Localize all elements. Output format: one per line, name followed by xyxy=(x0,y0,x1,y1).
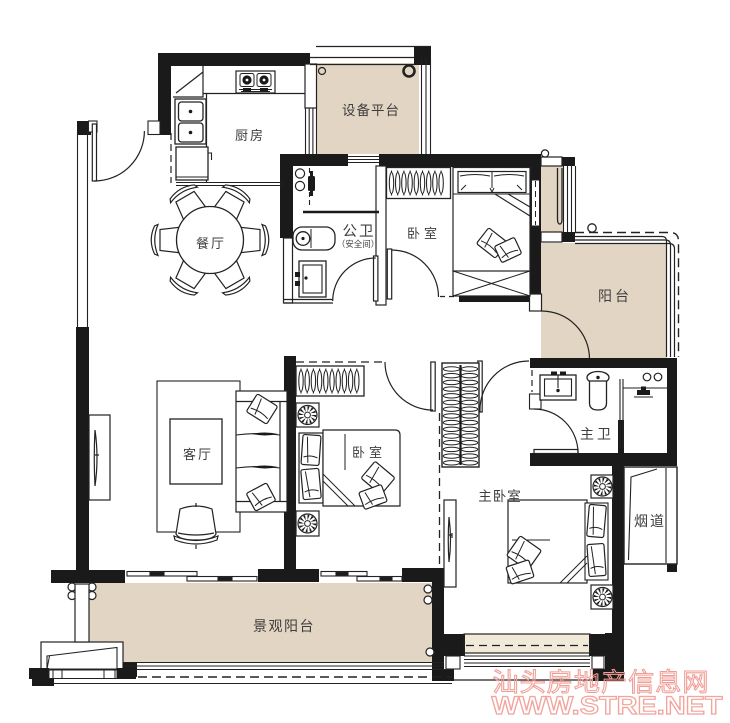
svg-text:卧室: 卧室 xyxy=(407,226,441,241)
svg-text:设备平台: 设备平台 xyxy=(342,102,400,118)
svg-text:烟道: 烟道 xyxy=(634,513,666,529)
svg-text:主卫: 主卫 xyxy=(580,426,614,442)
svg-text:主卧室: 主卧室 xyxy=(478,488,522,504)
svg-text:景观阳台: 景观阳台 xyxy=(253,618,315,634)
svg-text:餐厅: 餐厅 xyxy=(196,236,226,251)
svg-text:客厅: 客厅 xyxy=(183,447,213,462)
svg-text:厨房: 厨房 xyxy=(235,128,265,143)
svg-text:阳台: 阳台 xyxy=(598,288,632,304)
svg-text:（安全间）: （安全间） xyxy=(337,239,380,249)
svg-text:公卫: 公卫 xyxy=(343,224,376,240)
svg-text:卧室: 卧室 xyxy=(352,445,386,460)
svg-text:WWW.STRE.NET: WWW.STRE.NET xyxy=(492,692,723,720)
